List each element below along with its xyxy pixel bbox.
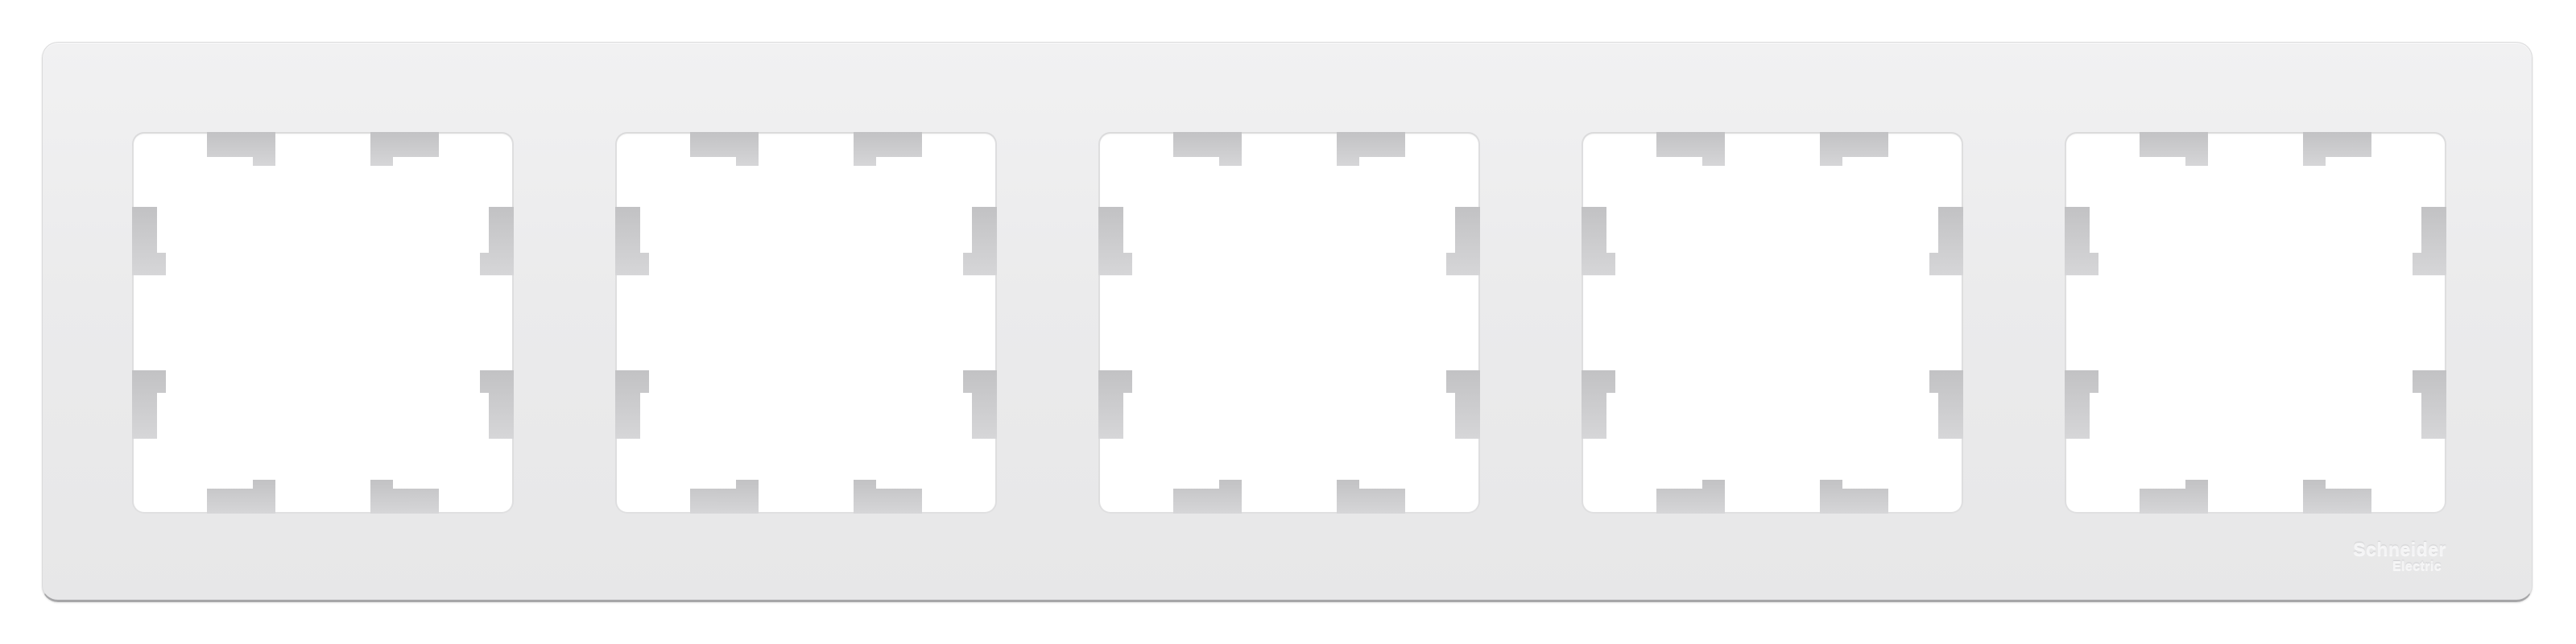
mounting-tab-right-upper bbox=[1446, 207, 1480, 275]
mounting-tab-bottom-left bbox=[690, 480, 759, 514]
mounting-tab-top-left bbox=[2140, 132, 2208, 166]
brand-logo: Schneider Electric bbox=[2353, 540, 2446, 573]
mounting-tab-left-lower bbox=[1098, 370, 1132, 439]
mounting-tab-top-left bbox=[1173, 132, 1242, 166]
mounting-tab-right-lower bbox=[1446, 370, 1480, 439]
mounting-tab-bottom-right bbox=[1337, 480, 1405, 514]
mounting-tab-top-left bbox=[207, 132, 275, 166]
mounting-tab-left-lower bbox=[1582, 370, 1615, 439]
mounting-tab-top-left bbox=[1656, 132, 1725, 166]
mounting-tab-left-upper bbox=[1098, 207, 1132, 275]
mounting-tab-bottom-left bbox=[1656, 480, 1725, 514]
module-opening-5 bbox=[2065, 132, 2446, 514]
mounting-tab-left-upper bbox=[1582, 207, 1615, 275]
mounting-tab-top-right bbox=[370, 132, 439, 166]
mounting-tab-top-left bbox=[690, 132, 759, 166]
mounting-tab-right-upper bbox=[2413, 207, 2446, 275]
mounting-tab-bottom-right bbox=[2303, 480, 2371, 514]
product-photo: Schneider Electric bbox=[0, 0, 2576, 644]
mounting-tab-top-right bbox=[2303, 132, 2371, 166]
mounting-tab-right-lower bbox=[963, 370, 997, 439]
mounting-tab-top-right bbox=[1337, 132, 1405, 166]
module-opening-3 bbox=[1098, 132, 1480, 514]
mounting-tab-left-lower bbox=[132, 370, 166, 439]
mounting-tab-bottom-left bbox=[2140, 480, 2208, 514]
mounting-tab-right-upper bbox=[963, 207, 997, 275]
mounting-tab-bottom-right bbox=[370, 480, 439, 514]
mounting-tab-right-lower bbox=[1929, 370, 1963, 439]
mounting-tab-right-lower bbox=[2413, 370, 2446, 439]
mounting-tab-right-lower bbox=[480, 370, 514, 439]
mounting-tab-left-lower bbox=[615, 370, 649, 439]
module-opening-2 bbox=[615, 132, 997, 514]
mounting-tab-bottom-left bbox=[207, 480, 275, 514]
mounting-tab-left-upper bbox=[615, 207, 649, 275]
mounting-tab-left-lower bbox=[2065, 370, 2098, 439]
mounting-tab-bottom-right bbox=[854, 480, 922, 514]
mounting-tab-top-right bbox=[1820, 132, 1888, 166]
mounting-tab-left-upper bbox=[132, 207, 166, 275]
brand-logo-line2: Electric bbox=[2353, 560, 2446, 573]
mounting-tab-left-upper bbox=[2065, 207, 2098, 275]
mounting-tab-right-upper bbox=[480, 207, 514, 275]
mounting-tab-bottom-right bbox=[1820, 480, 1888, 514]
mounting-tab-right-upper bbox=[1929, 207, 1963, 275]
module-opening-4 bbox=[1582, 132, 1963, 514]
wall-plate-frame: Schneider Electric bbox=[42, 42, 2533, 602]
module-opening-1 bbox=[132, 132, 514, 514]
mounting-tab-bottom-left bbox=[1173, 480, 1242, 514]
brand-logo-line1: Schneider bbox=[2353, 540, 2446, 559]
mounting-tab-top-right bbox=[854, 132, 922, 166]
